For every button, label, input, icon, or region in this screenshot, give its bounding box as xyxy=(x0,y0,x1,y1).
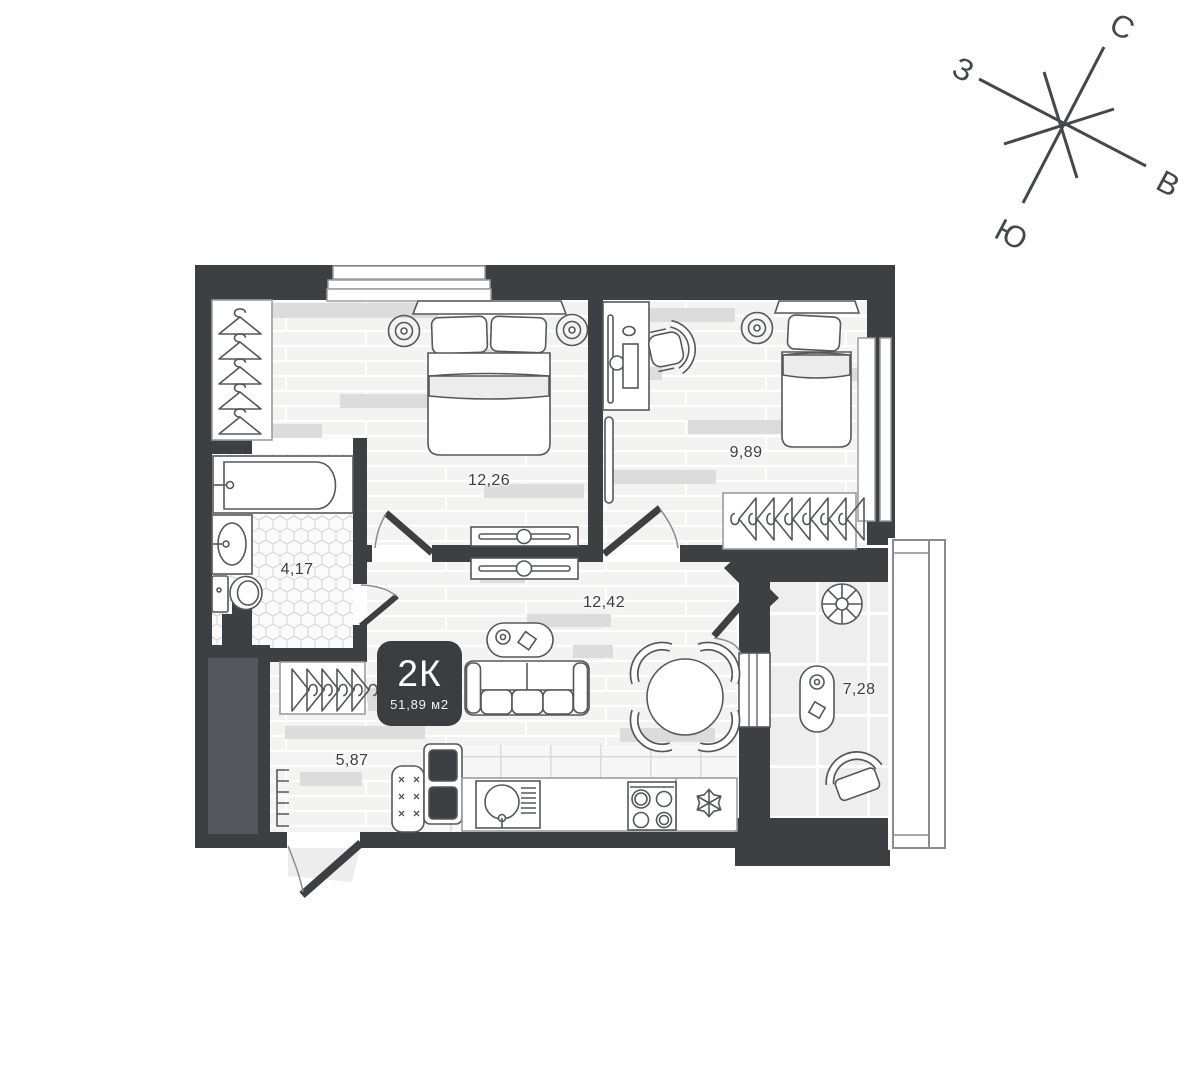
entrance-door-gap xyxy=(287,832,360,848)
compass-axis-minor-2 xyxy=(1004,109,1114,144)
bathtub xyxy=(213,456,353,513)
tv-console-bedroom1 xyxy=(471,527,578,546)
utility-unit xyxy=(424,744,462,824)
wall-between-bedrooms xyxy=(588,298,603,562)
apartment-type-label: 2К xyxy=(397,655,441,694)
room-label-living-kitchen: 12,42 xyxy=(583,594,625,612)
floor-plan-drawing xyxy=(0,0,1191,1080)
apartment-area-label: 51,89 м2 xyxy=(390,697,449,712)
kitchen-sink xyxy=(476,781,540,828)
bathroom-sink xyxy=(212,515,252,574)
stove xyxy=(628,782,676,830)
wardrobe-hallway xyxy=(280,662,377,714)
floor-plan-page: 12,26 9,89 4,17 12,42 5,87 7,28 2К 51,89… xyxy=(0,0,1191,1080)
stair-shaft-inner xyxy=(208,658,258,834)
bedroom2-window xyxy=(858,338,891,521)
wall-bottom xyxy=(360,832,740,848)
sofa xyxy=(465,661,589,715)
balcony-door xyxy=(739,653,770,727)
balcony-side-table xyxy=(800,666,834,732)
desk xyxy=(603,302,649,410)
wardrobe-bedroom1 xyxy=(212,300,272,440)
compass-axis-west-east xyxy=(979,79,1146,166)
toilet xyxy=(212,576,262,612)
wall-bathroom-right xyxy=(353,438,367,584)
balcony-glazing xyxy=(888,538,948,850)
coffee-table xyxy=(487,623,553,657)
room-label-bedroom-1: 12,26 xyxy=(468,472,510,490)
wall-left xyxy=(195,265,212,657)
tv-console-living xyxy=(471,558,578,579)
wardrobe-bedroom2 xyxy=(723,493,864,549)
balcony-fan xyxy=(822,584,862,624)
wall-top xyxy=(195,265,895,300)
shoe-mat xyxy=(392,766,424,832)
room-label-bedroom-2: 9,89 xyxy=(730,444,763,462)
room-label-bathroom: 4,17 xyxy=(281,561,314,579)
bedroom1-window xyxy=(327,266,491,301)
mirror xyxy=(605,417,613,503)
room-label-hallway: 5,87 xyxy=(336,752,369,770)
compass-rose xyxy=(979,47,1146,203)
room-label-balcony: 7,28 xyxy=(843,681,876,699)
apartment-type-badge: 2К 51,89 м2 xyxy=(377,641,462,726)
